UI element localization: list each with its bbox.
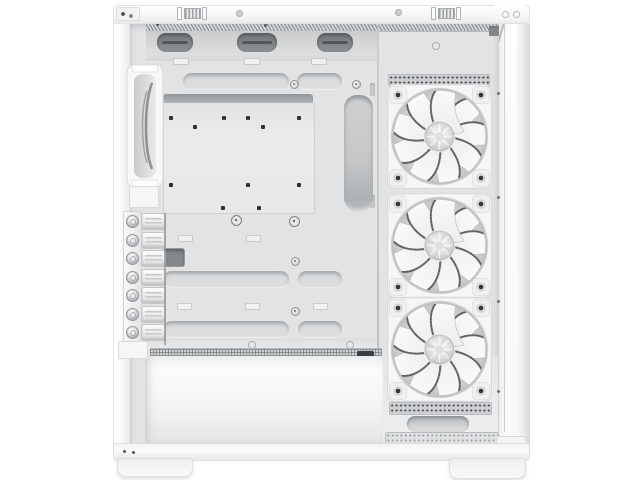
- pci-slot-cover: [141, 287, 166, 304]
- tray-dash-slot: [178, 235, 193, 242]
- pci-slot-cover: [141, 250, 166, 267]
- rear-fan-bracket: [129, 186, 159, 208]
- case-foot-front: [449, 458, 526, 479]
- pci-edge-line: [164, 213, 166, 345]
- cable-cutout: [163, 271, 289, 288]
- frame-screw: [497, 92, 500, 95]
- top-front-corner: [494, 5, 528, 22]
- screw: [352, 80, 361, 89]
- shelf-clip: [173, 58, 189, 65]
- tray-dash-slot: [245, 303, 260, 310]
- standoff-ring: [289, 216, 300, 227]
- pci-slot-cover: [141, 269, 166, 286]
- tray-dash-slot: [313, 303, 328, 310]
- front-fan-2: [387, 193, 492, 298]
- pci-thumbscrew: [126, 252, 139, 265]
- rear-exhaust-fan: [126, 63, 164, 189]
- shroud-handle-cutout: [407, 416, 469, 432]
- tray-edge-line: [377, 22, 379, 358]
- rivet: [123, 450, 126, 453]
- screw-hole: [513, 11, 520, 18]
- pci-slot-cover: [141, 306, 166, 323]
- top-cable-cutout: [157, 33, 193, 52]
- screw-hole: [432, 42, 440, 50]
- rivet: [132, 451, 135, 454]
- tray-dash-slot: [246, 235, 261, 242]
- motherboard-tray-plate: [163, 103, 315, 214]
- top-cable-cutout: [237, 33, 277, 52]
- shelf-clip: [311, 58, 327, 65]
- panel-seam-line: [504, 24, 505, 432]
- cable-cutout: [298, 271, 342, 288]
- pci-slot-cover: [141, 213, 166, 230]
- pci-thumbscrew: [126, 271, 139, 284]
- panel-clip: [489, 26, 499, 36]
- cable-cutout: [163, 321, 289, 338]
- screw: [291, 257, 300, 266]
- tray-dash-slot: [177, 303, 192, 310]
- side-cable-cutout: [344, 95, 373, 211]
- frame-screw: [497, 300, 500, 303]
- pci-thumbscrew: [126, 308, 139, 321]
- top-screw-hole: [236, 10, 243, 17]
- zip-tie-slot: [370, 83, 375, 96]
- small-cable-cutout: [163, 248, 185, 267]
- front-fan-array: [387, 82, 492, 407]
- panel-highlight: [511, 20, 516, 440]
- frame-screw: [497, 390, 500, 393]
- screw: [291, 307, 300, 316]
- pci-thumbscrew: [126, 326, 139, 339]
- rear-bottom-bracket: [118, 341, 148, 359]
- cable-cutout: [298, 321, 342, 338]
- top-panel-latch: [431, 6, 461, 19]
- case-foot-rear: [117, 458, 193, 477]
- standoff-ring: [231, 215, 242, 226]
- front-fan-1: [387, 84, 492, 189]
- pci-slot-cover: [141, 324, 166, 341]
- pci-thumbscrew: [126, 289, 139, 302]
- screw: [290, 80, 299, 89]
- rivet: [264, 24, 267, 27]
- pci-thumbscrew: [126, 234, 139, 247]
- front-fan-3: [387, 297, 492, 402]
- pci-slot-cover: [141, 232, 166, 249]
- top-bracket-shelf: [146, 31, 378, 61]
- cable-cutout: [297, 73, 342, 90]
- screw-hole: [502, 11, 509, 18]
- cable-cutout: [183, 73, 289, 90]
- top-panel-latch: [177, 6, 207, 19]
- frame-screw: [497, 196, 500, 199]
- product-photo-stage: [0, 0, 640, 480]
- pci-thumbscrew: [126, 215, 139, 228]
- top-panel: [113, 5, 530, 24]
- top-rear-bracket: [116, 7, 140, 21]
- top-cable-cutout: [317, 33, 353, 52]
- psu-shroud: [145, 356, 383, 445]
- shelf-clip: [244, 58, 260, 65]
- top-screw-hole: [395, 9, 402, 16]
